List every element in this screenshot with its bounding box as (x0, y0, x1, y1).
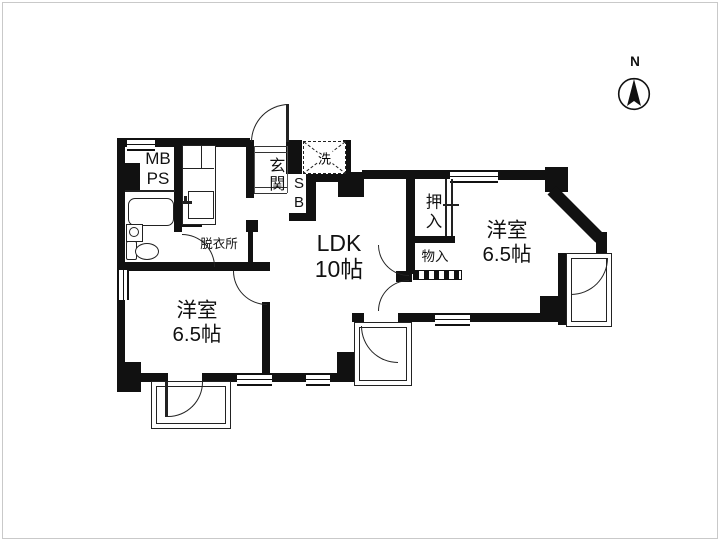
washer-label: 洗 (317, 148, 332, 167)
label-meter-pipe-space: MB PS (134, 149, 182, 189)
storage-door-arc (378, 245, 409, 276)
toilet-bowl (135, 243, 159, 260)
ldk-size: 10帖 (301, 256, 377, 282)
closet-sliding-door (445, 179, 447, 236)
balcony-left-door-leaf (165, 382, 168, 417)
label-sb-b: B (291, 193, 307, 212)
wall (498, 170, 546, 180)
window (435, 313, 470, 326)
bedroom-left-size: 6.5帖 (159, 323, 235, 347)
bedroom-right-door-arc (378, 280, 409, 311)
wall (398, 313, 435, 322)
bedroom-right-name: 洋室 (469, 219, 545, 243)
wall (272, 373, 306, 382)
closet-sliding-door (451, 179, 453, 236)
wall (470, 313, 560, 322)
label-shoe-box: S B (291, 174, 307, 212)
wall (308, 173, 340, 182)
room-label-bedroom-right: 洋室 6.5帖 (469, 219, 545, 267)
closet-door-tick (443, 204, 459, 206)
entrance-frame-line (254, 146, 255, 193)
wall (246, 220, 258, 232)
bedroom-left-door-arc (233, 271, 267, 305)
faucet-icon (184, 196, 187, 204)
bedroom-right-size: 6.5帖 (469, 243, 545, 267)
kitchen-sink (188, 191, 214, 219)
wall (248, 232, 253, 264)
window (306, 373, 330, 386)
bathtub (128, 198, 174, 226)
wall (262, 302, 270, 377)
wall (289, 213, 316, 221)
wall (286, 140, 302, 174)
wall (117, 138, 125, 270)
wall (352, 313, 364, 322)
room-label-bedroom-left: 洋室 6.5帖 (159, 299, 235, 347)
entrance-frame-line (287, 146, 288, 193)
wall-pillar (338, 172, 364, 197)
label-ps: PS (134, 169, 182, 189)
washbasin-bowl (129, 227, 139, 237)
entrance-door-arc (251, 104, 289, 142)
compass-north-label: N (625, 54, 645, 70)
bedroom-left-name: 洋室 (159, 299, 235, 323)
window (237, 373, 272, 386)
wall (362, 170, 408, 179)
compass-icon (617, 74, 651, 112)
washer-space: 洗 (303, 141, 346, 174)
wall (406, 170, 450, 179)
floor-plan: 洗 MB PS 玄関 S B 押入 物入 脱衣所 LDK 10帖 洋室 6.5帖… (0, 0, 720, 541)
label-closet: 押入 (422, 184, 441, 240)
wall-line (125, 190, 175, 192)
window (450, 170, 498, 183)
ldk-name: LDK (301, 230, 377, 256)
label-sb-s: S (291, 174, 307, 193)
wall (246, 140, 254, 198)
label-storage: 物入 (413, 249, 457, 265)
room-label-ldk: LDK 10帖 (301, 230, 377, 282)
wall-hatched (413, 270, 462, 280)
counter-divider (182, 168, 214, 169)
label-dressing-room: 脱衣所 (190, 237, 248, 251)
counter-divider (201, 145, 202, 168)
label-mb: MB (134, 149, 182, 169)
entrance-door-leaf (286, 104, 289, 142)
window (117, 270, 129, 300)
label-entrance: 玄関 (265, 150, 283, 200)
